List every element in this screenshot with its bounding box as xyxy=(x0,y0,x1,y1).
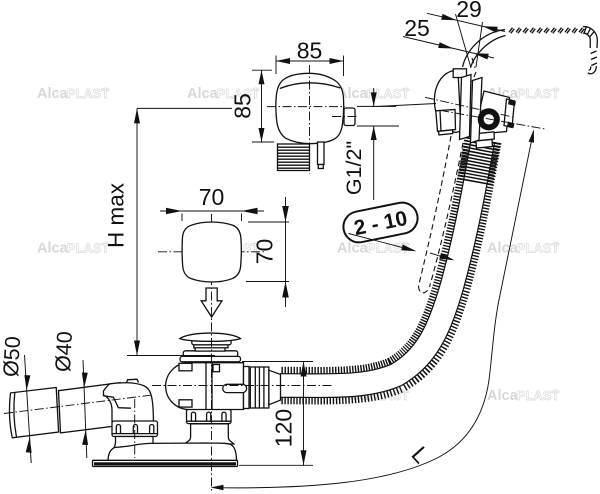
svg-text:120: 120 xyxy=(271,409,297,447)
svg-text:Alca: Alca xyxy=(487,241,519,257)
svg-text:85: 85 xyxy=(230,93,256,119)
svg-text:70: 70 xyxy=(252,239,278,265)
svg-text:H max: H max xyxy=(104,182,129,248)
svg-text:Alca: Alca xyxy=(487,388,519,404)
svg-text:®: ® xyxy=(553,241,559,249)
svg-text:29: 29 xyxy=(456,0,482,22)
svg-text:®: ® xyxy=(553,388,559,396)
svg-text:G1/2": G1/2" xyxy=(342,141,366,195)
svg-text:85: 85 xyxy=(297,38,323,64)
svg-text:®: ® xyxy=(103,86,109,94)
svg-text:Ø50: Ø50 xyxy=(0,336,25,378)
svg-text:Alca: Alca xyxy=(187,86,219,102)
svg-text:®: ® xyxy=(403,86,409,94)
svg-text:70: 70 xyxy=(199,184,225,210)
svg-text:®: ® xyxy=(253,86,259,94)
svg-text:Alca: Alca xyxy=(37,86,69,102)
svg-text:25: 25 xyxy=(404,15,430,41)
svg-text:Alca: Alca xyxy=(37,241,69,257)
svg-text:®: ® xyxy=(553,86,559,94)
svg-text:Alca: Alca xyxy=(337,241,369,257)
svg-text:Ø40: Ø40 xyxy=(51,331,77,373)
